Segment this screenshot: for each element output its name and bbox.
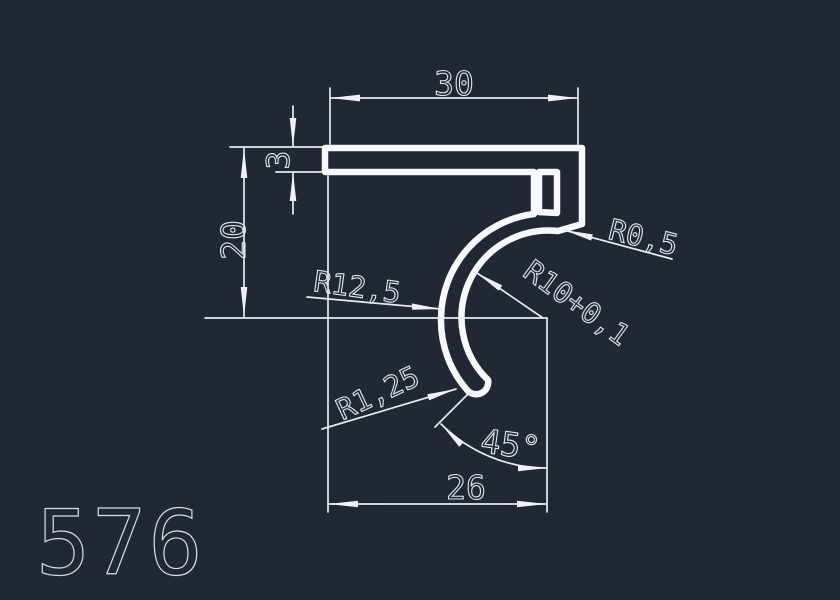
- dim-label-30: 30: [434, 64, 474, 103]
- dim-label-r0-5: R0,5: [605, 212, 681, 262]
- dim-label-3: 3: [261, 151, 297, 170]
- dim-label-20: 20: [214, 220, 253, 260]
- arrow-30-right: [548, 95, 578, 102]
- profile-drawing: 30 3 20 26 45° R12,5 R10+0,1 R0,5 R1,25 …: [0, 0, 840, 600]
- arrow-26-left: [328, 501, 358, 508]
- profile-notch-path: [539, 172, 557, 213]
- dim-label-26: 26: [446, 468, 486, 507]
- dim-label-45deg: 45°: [478, 421, 542, 468]
- arrow-3-top: [290, 118, 297, 147]
- arrow-r1-25: [427, 389, 456, 400]
- arrow-45-left: [441, 424, 464, 447]
- arrow-r0-5: [564, 230, 593, 241]
- dim-label-r10: R10+0,1: [517, 253, 636, 352]
- arrow-r10: [477, 273, 502, 291]
- arrow-20-top: [241, 148, 248, 178]
- arrow-20-bottom: [241, 287, 248, 317]
- arrow-3-bottom: [290, 172, 297, 201]
- arrow-r12-5: [412, 303, 441, 309]
- arrow-26-right: [517, 501, 547, 508]
- cad-drawing-canvas: 30 3 20 26 45° R12,5 R10+0,1 R0,5 R1,25 …: [0, 0, 840, 600]
- angle-ray-45: [435, 393, 469, 427]
- arrow-30-left: [330, 95, 360, 102]
- part-number-label: 576: [36, 491, 205, 596]
- dim-label-r12-5: R12,5: [312, 264, 403, 310]
- dim-label-r1-25: R1,25: [331, 359, 425, 427]
